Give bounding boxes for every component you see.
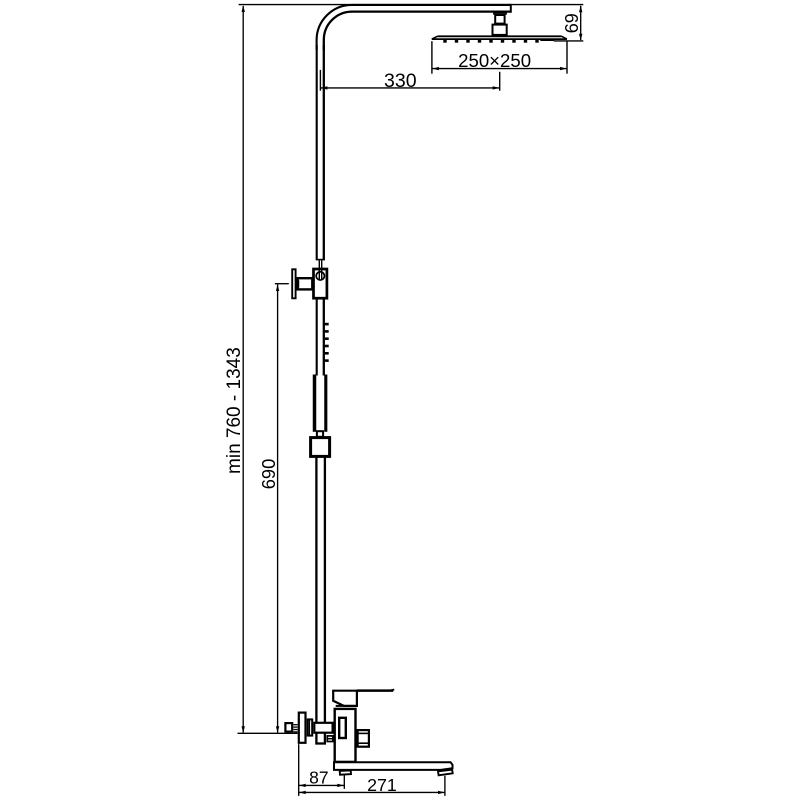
svg-text:87: 87	[309, 768, 328, 788]
svg-text:250×250: 250×250	[458, 50, 531, 71]
svg-text:min 760 - 1343: min 760 - 1343	[224, 347, 245, 474]
svg-text:69: 69	[562, 13, 582, 33]
svg-text:271: 271	[367, 775, 397, 795]
svg-text:690: 690	[258, 459, 279, 490]
svg-text:330: 330	[384, 70, 417, 92]
